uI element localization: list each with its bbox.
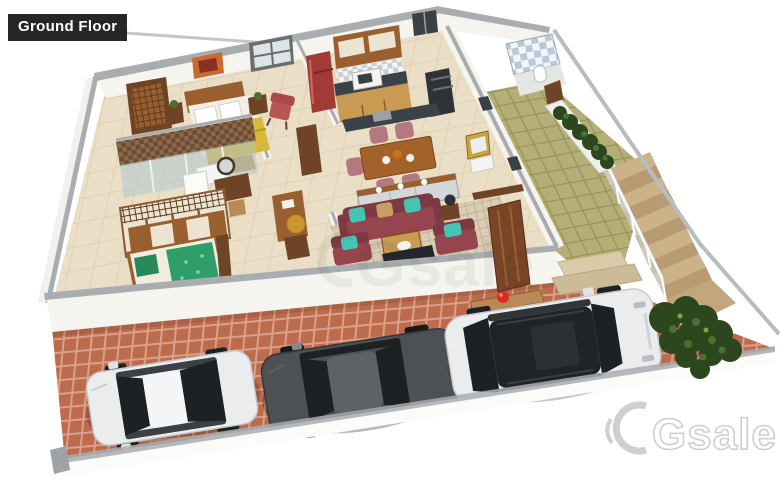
desk-chair [284,234,310,260]
dining-chair [368,126,389,145]
vanity-stool [228,199,246,217]
corridor-window [412,10,438,36]
gold-pouf [287,215,305,233]
floor-plan-scene: Gsale Gsale [0,0,780,490]
floor-label-badge: Ground Floor [8,14,127,41]
brand-watermark-text: Gsale [652,410,777,459]
kitchen-cabinets [333,25,412,123]
study-desk [272,190,308,242]
floor-plan-render: Gsale Gsale Ground Floor [0,0,780,490]
floor-label: Ground Floor [18,18,117,35]
center-watermark-text: Gsale [356,228,535,300]
dining-chair [394,121,415,140]
